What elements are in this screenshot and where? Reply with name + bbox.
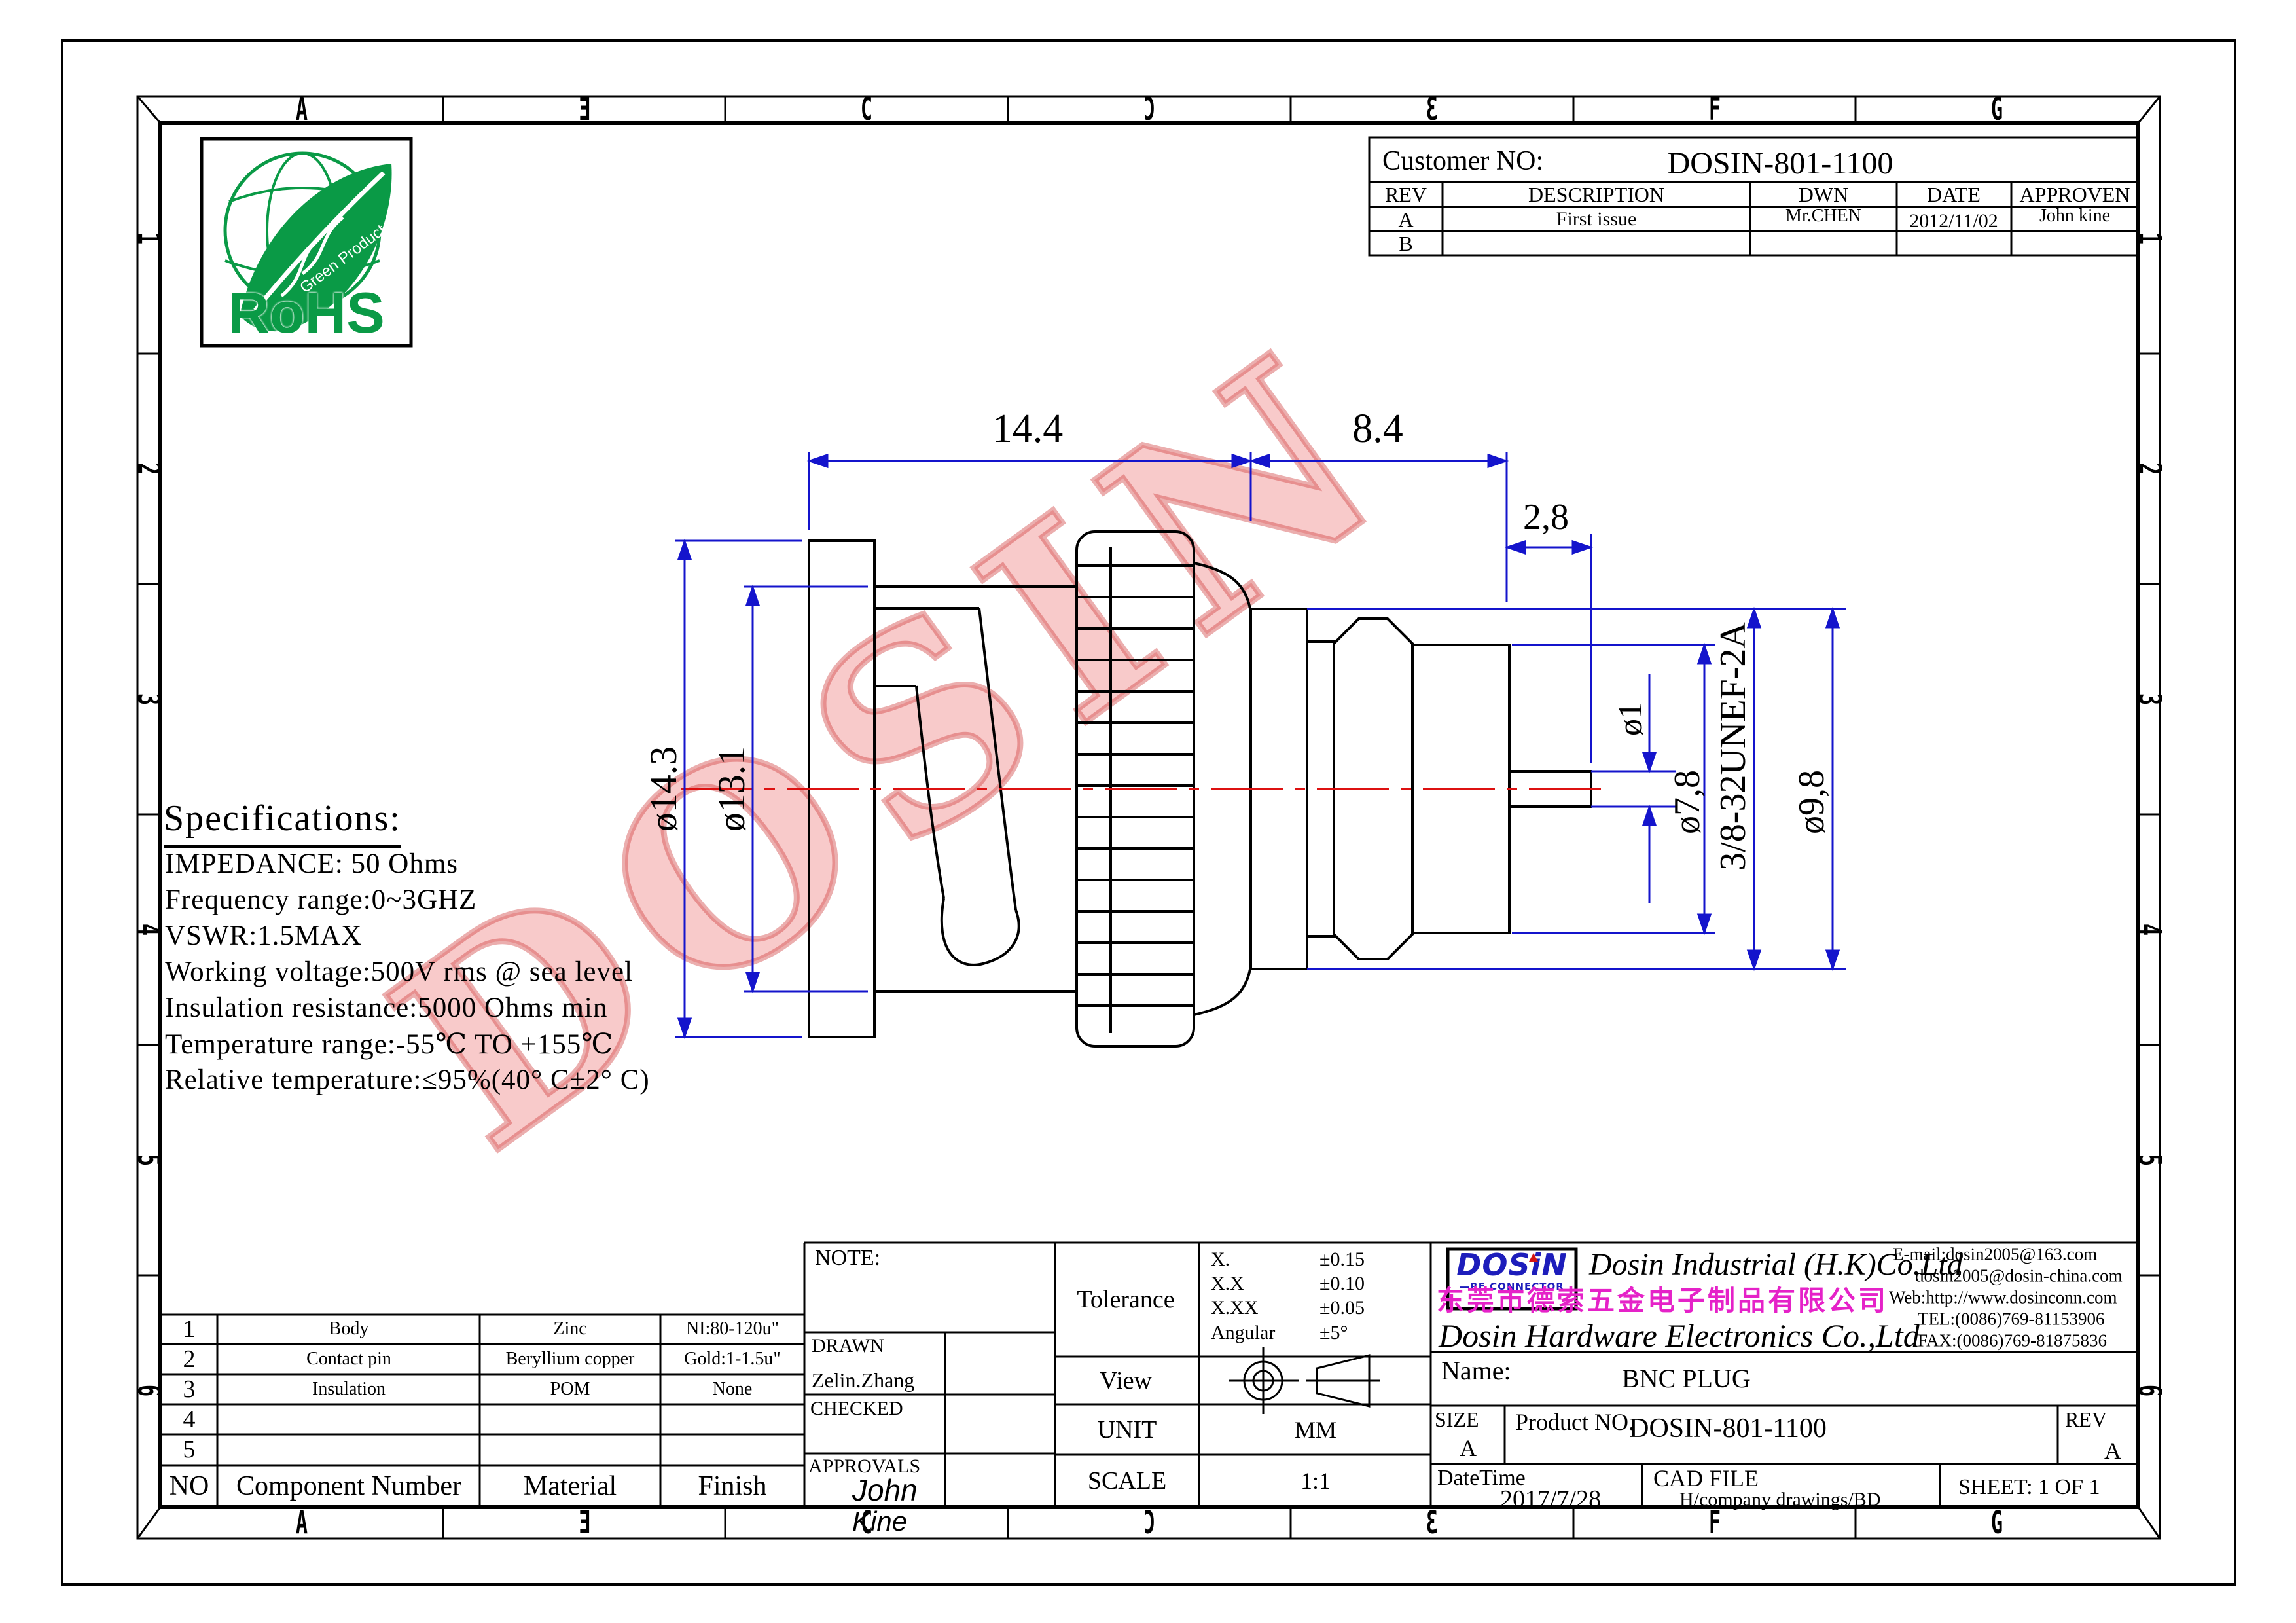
company-email1: E-mail:dosin2005@163.com [1893,1246,2097,1264]
part-material: Zinc [553,1320,586,1338]
rev-value: A [2104,1439,2121,1463]
company-name-en2: Dosin Hardware Electronics Co.,Ltd [1439,1319,1920,1352]
view-label: View [1100,1368,1152,1393]
name-label: Name: [1441,1358,1511,1384]
tolerance-range: Angular [1211,1323,1275,1343]
dim-dia-flange: ø14.3 [645,746,683,832]
zone-number-right: 3 [2134,693,2165,705]
zone-number-left: 5 [133,1154,164,1166]
rev-a-dwn: Mr.CHEN [1785,207,1861,225]
zone-letter-top: Ǝ [579,94,590,125]
dim-dia-shell: ø13.1 [713,746,751,832]
scale-value: 1:1 [1300,1469,1331,1493]
date-col-header: DATE [1927,184,1981,205]
spec-line: Insulation resistance:5000 Ohms min [165,990,650,1026]
company-name-cn: 东莞市德索五金电子制品有限公司 [1437,1287,1888,1315]
sheet-label: SHEET: [1958,1475,2033,1499]
zone-letter-bottom: Ɛ [1426,1507,1438,1539]
zone-letter-bottom: A [296,1507,308,1539]
spec-line: Working voltage:500V rms @ sea level [165,954,650,990]
bayonet-slot-hook [916,608,1019,965]
company-email2: dosin2005@dosin-china.com [1915,1267,2123,1285]
scale-label: SCALE [1088,1468,1166,1493]
approven-col-header: APPROVEN [2020,184,2130,205]
zone-letter-bottom: Ɔ [1143,1507,1155,1539]
spec-line: VSWR:1.5MAX [165,918,650,954]
tolerance-range: X.X [1211,1274,1244,1294]
customer-no-value: DOSIN-801-1100 [1668,148,1893,179]
datetime-value: 2017/7/28 [1500,1487,1601,1512]
spec-line: Temperature range:-55℃ TO +155℃ [165,1026,650,1062]
parts-header-finish: Finish [698,1472,766,1500]
cad-file-label: CAD FILE [1653,1467,1759,1490]
zone-number-right: 6 [2134,1385,2165,1396]
dim-dia-collar: ø9,8 [1793,770,1830,834]
dim-thread-callout: 3/8-32UNEF-2A [1715,622,1751,871]
dwn-col-header: DWN [1799,184,1848,205]
part-component: Contact pin [306,1350,391,1368]
zone-number-right: 4 [2134,924,2165,936]
name-value: BNC PLUG [1622,1366,1751,1392]
note-label: NOTE: [815,1247,880,1269]
description-col-header: DESCRIPTION [1528,184,1664,205]
zone-number-right: 2 [2134,463,2165,475]
part-material: Beryllium copper [506,1350,635,1368]
zone-letter-top: G [1991,94,2003,125]
bayonet-slot-lines [874,608,979,686]
zone-letter-bottom: F [1709,1507,1721,1539]
tolerance-range: X. [1211,1250,1230,1269]
tolerance-value: ±0.15 [1319,1250,1365,1269]
approved-signature-2: Kine [852,1508,907,1535]
specifications-title: Specifications: [164,797,401,848]
zone-number-right: 1 [2134,232,2165,244]
dim-dia-body: ø7,8 [1669,770,1706,834]
part-no: 1 [183,1317,196,1341]
dim-length-main: 14.4 [992,409,1064,449]
part-no: 2 [183,1347,196,1372]
part-no: 3 [183,1377,196,1402]
company-web: Web:http://www.dosinconn.com [1889,1289,2117,1307]
tolerance-value: ±0.10 [1319,1274,1365,1294]
rev-a-date: 2012/11/02 [1909,211,1998,231]
zone-letter-top: A [296,94,308,125]
tolerance-value: ±0.05 [1319,1298,1365,1318]
company-fax: FAX:(0086)769-81875836 [1918,1332,2107,1350]
parts-header-material: Material [524,1472,617,1500]
company-tel: TEL:(0086)769-81153906 [1918,1311,2104,1328]
sheet-value: 1 OF 1 [2038,1475,2100,1499]
drawing-sheet: DOSIN [0,0,2296,1623]
zone-letter-top: Ɛ [1426,94,1438,125]
zone-number-left: 1 [133,232,164,244]
tolerance-value: ±5° [1319,1323,1348,1343]
rev-a-description: First issue [1556,210,1637,229]
zone-letter-bottom: G [1991,1507,2003,1539]
part-no: 4 [183,1407,196,1432]
approved-signature: John [852,1475,918,1505]
size-label: SIZE [1435,1409,1479,1430]
dosin-logo-text: DOSiN [1448,1249,1576,1281]
size-value: A [1460,1436,1477,1460]
dim-dia-pin: ø1 [1614,702,1648,736]
part-material: POM [550,1380,590,1398]
zone-letter-bottom: Ǝ [579,1507,590,1539]
knurl-ribs [1077,566,1194,1006]
part-finish: NI:80-120u" [686,1320,779,1338]
zone-number-left: 4 [133,924,164,936]
cad-file-value: H/company drawings/BD [1679,1490,1880,1510]
customer-no-label: Customer NO: [1382,147,1543,175]
rev-col-header: REV [1385,184,1427,205]
part-component: Insulation [312,1380,386,1398]
dim-length-rear: 8.4 [1352,409,1403,449]
drawn-by: Zelin.Zhang [812,1370,914,1391]
specifications-list: IMPEDANCE: 50 Ohms Frequency range:0~3GH… [165,846,650,1098]
dim-length-pin: 2,8 [1523,499,1569,536]
spec-line: Relative temperature:≤95%(40° C±2° C) [165,1062,650,1098]
rev-b: B [1399,233,1412,254]
part-component: Body [329,1320,369,1338]
logo-flame-icon [1529,1253,1538,1262]
rev-a: A [1398,209,1413,230]
parts-header-no: NO [170,1472,209,1500]
spec-line: IMPEDANCE: 50 Ohms [165,846,650,882]
sheet-info: SHEET: 1 OF 1 [1958,1476,2100,1499]
zone-number-left: 6 [133,1385,164,1396]
rev-a-approven: John kine [2039,207,2110,225]
unit-label: UNIT [1098,1417,1157,1442]
zone-number-left: 2 [133,463,164,475]
spec-line: Frequency range:0~3GHZ [165,882,650,918]
checked-label: CHECKED [810,1399,903,1419]
product-no-label: Product NO. [1515,1410,1634,1434]
tolerance-range: X.XX [1211,1298,1259,1318]
part-finish: Gold:1-1.5u" [684,1350,781,1368]
zone-letter-top: C [861,94,872,125]
part-no: 5 [183,1437,196,1462]
tolerance-label: Tolerance [1077,1287,1174,1312]
drawn-label: DRAWN [812,1336,884,1356]
part-finish: None [713,1380,753,1398]
product-no-value: DOSIN-801-1100 [1629,1415,1827,1442]
zone-letter-top: F [1709,94,1721,125]
zone-number-right: 5 [2134,1154,2165,1166]
rohs-label: RoHS [228,284,385,342]
unit-value: MM [1295,1418,1336,1442]
parts-header-component: Component Number [236,1472,461,1500]
rev-label: REV [2065,1409,2107,1430]
zone-number-left: 3 [133,693,164,705]
zone-letter-top: Ɔ [1143,94,1155,125]
